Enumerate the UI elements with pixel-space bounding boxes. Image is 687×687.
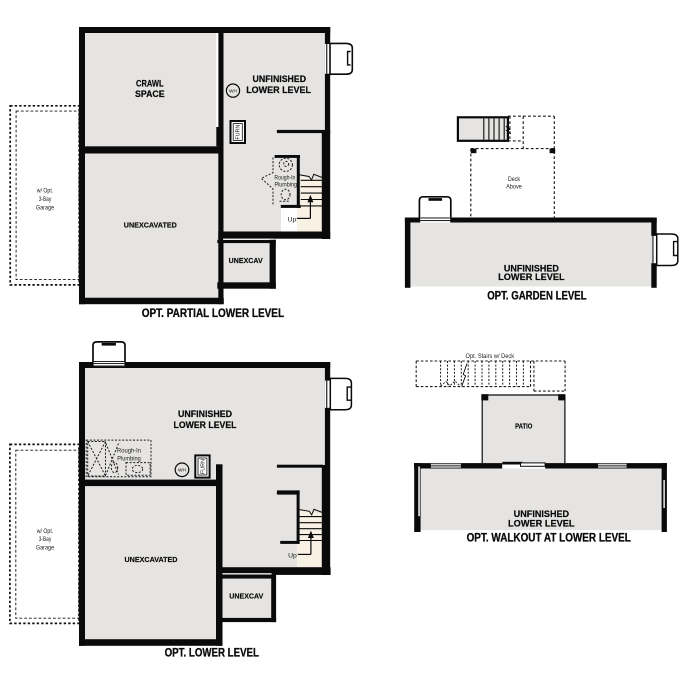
svg-text:Rough-In: Rough-In — [274, 174, 295, 181]
svg-text:Garage: Garage — [36, 204, 55, 211]
svg-text:OPT. GARDEN LEVEL: OPT. GARDEN LEVEL — [487, 289, 587, 303]
svg-text:PATIO: PATIO — [515, 424, 533, 431]
svg-text:Up: Up — [288, 217, 297, 224]
svg-text:w/ Opt.: w/ Opt. — [36, 188, 53, 195]
svg-text:w/ Opt.: w/ Opt. — [36, 528, 53, 535]
svg-text:Plumbing: Plumbing — [274, 181, 297, 188]
svg-text:LOWER LEVEL: LOWER LEVEL — [508, 518, 575, 528]
svg-text:UNFINISHED: UNFINISHED — [178, 409, 233, 419]
svg-text:Plumbing: Plumbing — [117, 455, 141, 462]
svg-text:UNFINISHED: UNFINISHED — [514, 509, 570, 519]
svg-text:OPT. PARTIAL LOWER LEVEL: OPT. PARTIAL LOWER LEVEL — [142, 306, 285, 320]
svg-text:UNEXCAVATED: UNEXCAVATED — [124, 223, 177, 230]
svg-text:Above: Above — [506, 185, 522, 191]
svg-text:UNEXCAV: UNEXCAV — [229, 593, 263, 600]
svg-text:WH: WH — [229, 88, 238, 94]
svg-text:Opt. Stairs w/ Deck: Opt. Stairs w/ Deck — [466, 353, 515, 360]
svg-text:FURN: FURN — [200, 459, 206, 474]
svg-text:LOWER LEVEL: LOWER LEVEL — [246, 85, 311, 95]
svg-text:LOWER LEVEL: LOWER LEVEL — [498, 272, 565, 282]
svg-text:OPT. LOWER LEVEL: OPT. LOWER LEVEL — [165, 646, 260, 660]
svg-text:OPT. WALKOUT AT LOWER LEVEL: OPT. WALKOUT AT LOWER LEVEL — [467, 530, 632, 544]
svg-text:SPACE: SPACE — [135, 89, 165, 99]
svg-text:Rough-In: Rough-In — [117, 448, 141, 455]
svg-text:Garage: Garage — [36, 544, 55, 551]
svg-text:UNEXCAV: UNEXCAV — [229, 258, 263, 265]
svg-text:UNEXCAVATED: UNEXCAVATED — [125, 557, 178, 564]
svg-text:UNFINISHED: UNFINISHED — [253, 74, 307, 84]
svg-text:CRAWL: CRAWL — [136, 78, 164, 88]
svg-text:FURN: FURN — [236, 125, 242, 140]
svg-text:WH: WH — [178, 468, 187, 474]
svg-text:Deck: Deck — [508, 177, 521, 183]
svg-text:LOWER LEVEL: LOWER LEVEL — [174, 420, 237, 430]
svg-text:3-Bay: 3-Bay — [39, 196, 52, 203]
svg-text:3-Bay: 3-Bay — [39, 536, 52, 543]
svg-text:Up: Up — [288, 552, 297, 559]
